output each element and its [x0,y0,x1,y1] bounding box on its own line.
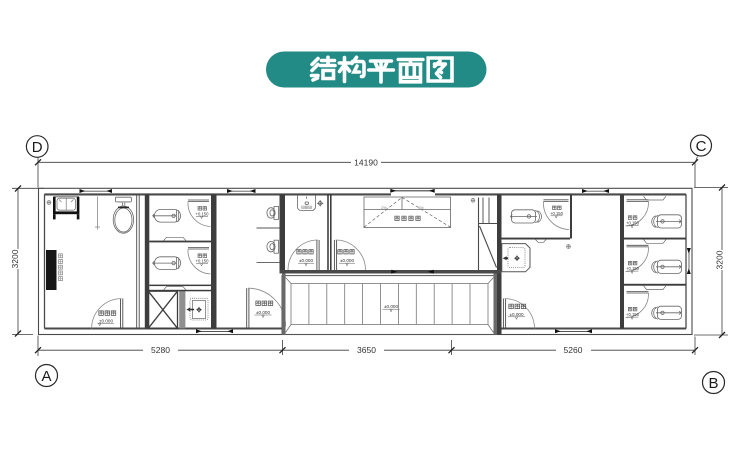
svg-text:2%: 2% [418,206,424,210]
svg-text:±0.000: ±0.000 [509,312,523,317]
svg-text:5260: 5260 [564,345,583,355]
svg-text:+0.150: +0.150 [626,266,640,271]
svg-text:C: C [696,138,707,155]
svg-text:±0.000: ±0.000 [384,304,398,309]
svg-text:+0.150: +0.150 [196,211,210,216]
svg-text:A: A [41,368,51,385]
svg-text:3200: 3200 [715,250,725,269]
svg-text:B: B [708,375,718,392]
svg-text:3650: 3650 [357,345,376,355]
svg-text:2%: 2% [381,206,387,210]
svg-text:+0.150: +0.150 [626,312,640,317]
svg-text:±0.000: ±0.000 [340,258,354,263]
svg-text:+0.150: +0.150 [196,259,210,264]
svg-text:±0.000: ±0.000 [99,318,113,323]
svg-text:±0.000: ±0.000 [299,258,313,263]
svg-text:+0.150: +0.150 [626,221,640,226]
svg-text:+0.150: +0.150 [550,211,564,216]
svg-text:3200: 3200 [10,249,20,268]
svg-text:D: D [32,139,43,156]
svg-text:±0.000: ±0.000 [256,310,270,315]
svg-text:14190: 14190 [354,157,378,167]
svg-text:5280: 5280 [151,345,170,355]
